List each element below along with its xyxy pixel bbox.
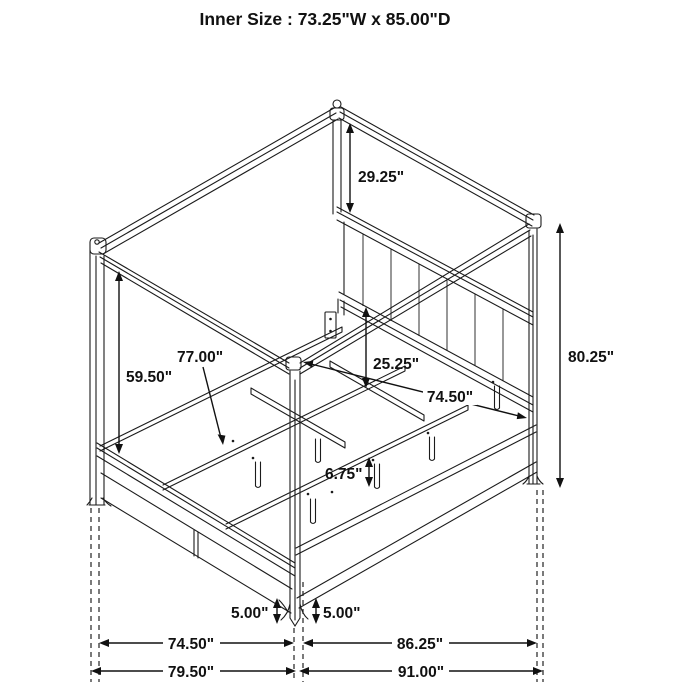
dim-center-leg-height: 6.75"	[325, 466, 363, 483]
drawer-divider	[194, 530, 198, 558]
dim-depth-inner: 86.25"	[397, 636, 443, 653]
cross-slat-1	[251, 388, 345, 448]
side-rail	[296, 425, 537, 608]
dim-headboard-to-rail: 25.25"	[373, 356, 419, 373]
dim-side-rail-length: 74.50"	[427, 389, 473, 406]
headboard	[325, 207, 533, 412]
dim-slat-length: 77.00"	[177, 349, 223, 366]
diagram-canvas: Inner Size : 73.25"W x 85.00"D	[0, 0, 700, 700]
dim-width-inner: 74.50"	[168, 636, 214, 653]
canopy-corner-back-knob	[333, 100, 341, 108]
dim-width-overall: 79.50"	[168, 664, 214, 681]
dim-foot-clearance-left: 5.00"	[231, 605, 269, 622]
dimension-annotations: 29.25" 80.25" 59.50" 77.00" 25.25" 74.50…	[91, 123, 614, 682]
inner-size-title: Inner Size : 73.25"W x 85.00"D	[199, 9, 450, 29]
canopy-corner-right	[526, 214, 541, 228]
dim-foot-clearance-right: 5.00"	[323, 605, 361, 622]
canopy-bed-dimension-diagram: Inner Size : 73.25"W x 85.00"D	[0, 0, 700, 700]
dim-post-height: 80.25"	[568, 349, 614, 366]
canopy-frame	[90, 100, 541, 374]
dim-footboard-to-canopy: 59.50"	[126, 369, 172, 386]
dim-canopy-to-headboard: 29.25"	[358, 169, 404, 186]
dim-depth-overall: 91.00"	[398, 664, 444, 681]
